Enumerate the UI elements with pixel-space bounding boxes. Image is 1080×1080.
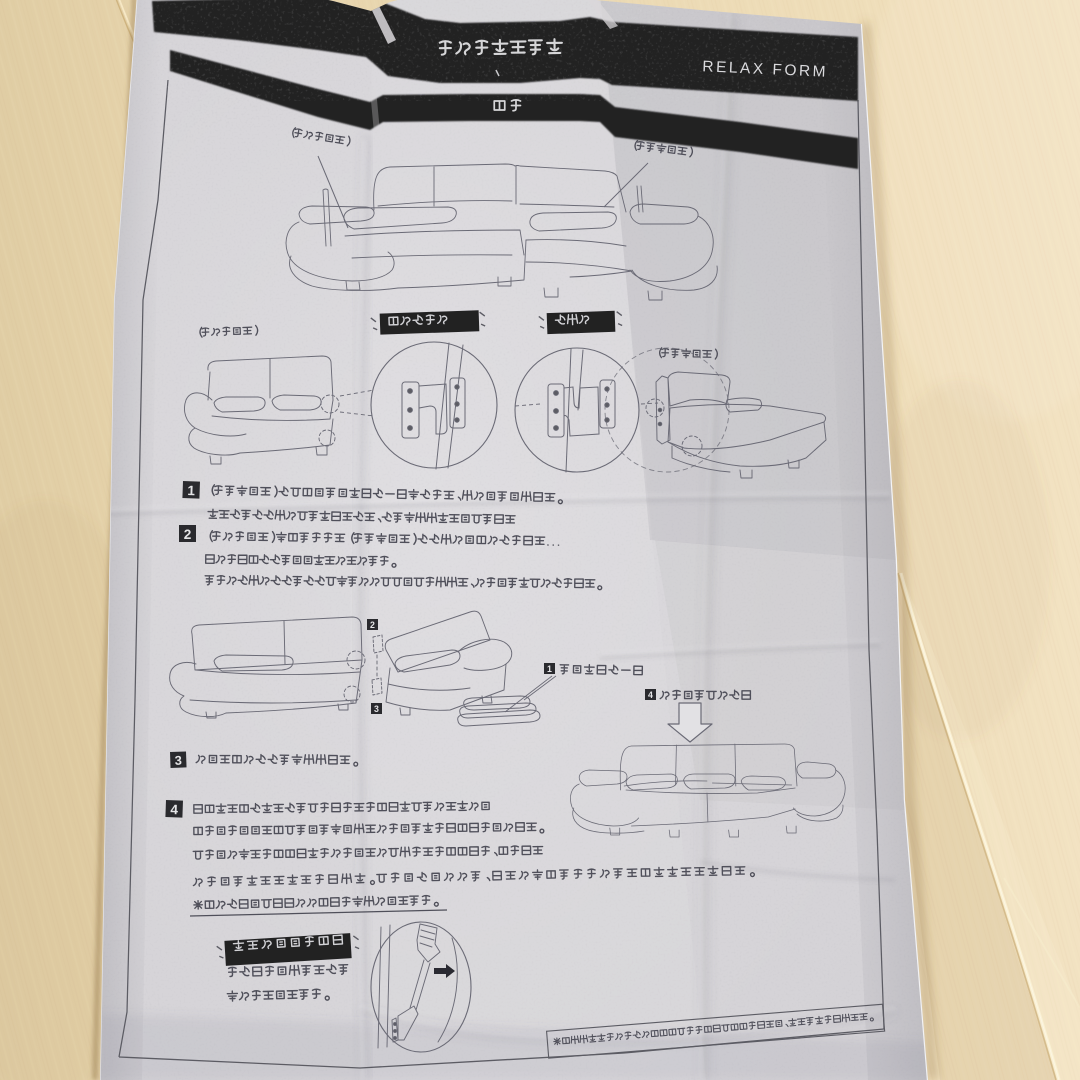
svg-text:4: 4	[648, 690, 653, 700]
svg-text:2: 2	[370, 620, 375, 630]
svg-text:3: 3	[174, 753, 182, 768]
svg-text:2: 2	[184, 527, 192, 542]
svg-text:4: 4	[170, 802, 179, 817]
svg-text:3: 3	[374, 704, 379, 714]
svg-text:1: 1	[187, 483, 196, 498]
svg-text:1: 1	[547, 664, 552, 674]
